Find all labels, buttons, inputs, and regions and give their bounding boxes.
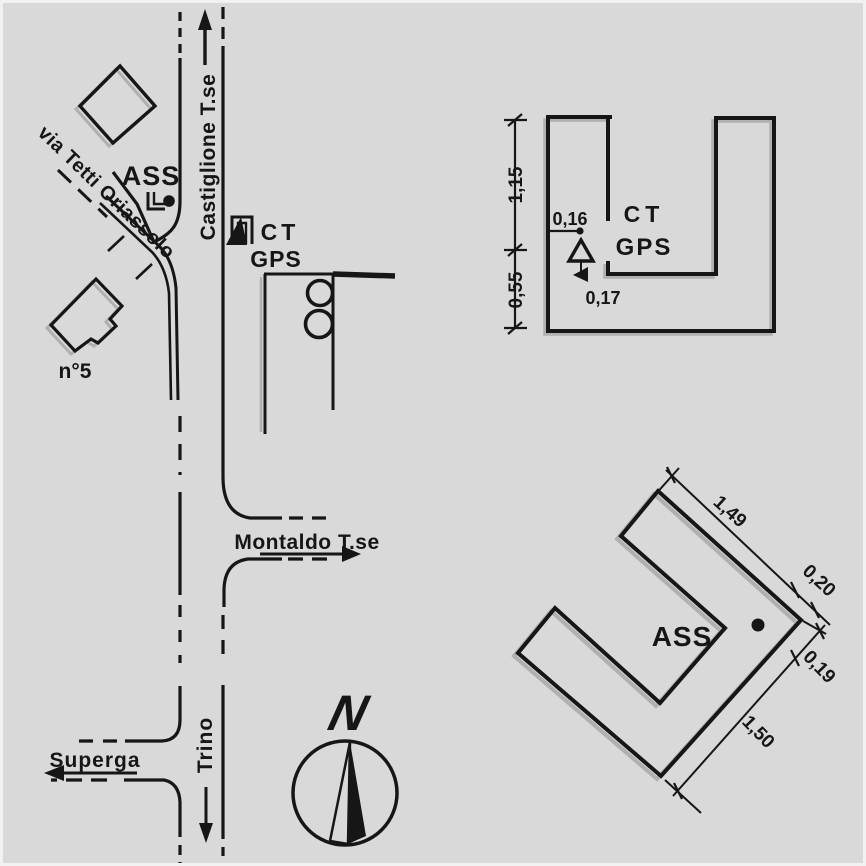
house-number-label: n°5 bbox=[59, 360, 92, 383]
survey-monograph-sketch: ASS CT GPS Castiglione T.se via Tetti Or… bbox=[0, 0, 866, 866]
compass-rose: N bbox=[293, 685, 397, 845]
ass-station-dot-icon bbox=[163, 195, 175, 207]
road-right-edge-upper bbox=[223, 46, 282, 518]
ct-dim-055-label: 0,55 bbox=[506, 271, 527, 308]
castiglione-arrow-icon bbox=[198, 9, 212, 30]
ass-dim-020-label: 0,20 bbox=[798, 561, 839, 602]
road-left-edge-upper bbox=[154, 58, 180, 242]
via-tetti-cross-tick-1 bbox=[108, 236, 124, 251]
building-diamond bbox=[80, 66, 155, 143]
ct-detail-label-gps: GPS bbox=[616, 234, 673, 261]
superga-bottom-edge bbox=[124, 780, 180, 837]
superga-top-edge bbox=[125, 686, 180, 741]
street-label-superga: Superga bbox=[49, 749, 140, 772]
street-label-trino: Trino bbox=[194, 717, 217, 773]
ct-dim-017-label: 0,17 bbox=[585, 288, 620, 308]
montaldo-bottom-edge bbox=[224, 559, 282, 607]
map-label-ct: CT bbox=[261, 219, 300, 245]
ass-dim-149-label: 1,49 bbox=[709, 492, 751, 532]
ct-station-triangle-icon bbox=[569, 240, 593, 261]
ct-station-flag-icon bbox=[226, 217, 247, 245]
gps-window-circle-2 bbox=[306, 311, 333, 338]
building-diamond-shadow bbox=[76, 69, 151, 146]
compass-needle-east-icon bbox=[348, 742, 366, 844]
ass-dim-019-label: 0,19 bbox=[799, 647, 840, 688]
ass-station-dot-icon bbox=[752, 619, 765, 632]
compass-north-label: N bbox=[323, 685, 374, 741]
map-label-gps: GPS bbox=[250, 246, 302, 272]
sketch-canvas: ASS CT GPS Castiglione T.se via Tetti Or… bbox=[3, 3, 863, 863]
ass-detail-label: ASS bbox=[652, 621, 713, 652]
ct-dim-115-label: 1,15 bbox=[506, 166, 527, 203]
buildings bbox=[47, 66, 395, 434]
street-label-montaldo: Montaldo T.se bbox=[234, 531, 379, 554]
via-tetti-cross-tick-2 bbox=[136, 264, 152, 279]
gps-window-circle-1 bbox=[308, 281, 333, 306]
detail-ass: ASS 1,49 0,20 0,19 1,50 bbox=[514, 467, 839, 813]
map-label-ass: ASS bbox=[122, 161, 181, 191]
ass-corner-bracket-outer bbox=[148, 192, 165, 209]
building-gps-roof-line bbox=[333, 274, 395, 276]
detail-ct-gps: 1,15 0,55 0,16 0,17 CT GPS bbox=[504, 114, 774, 334]
ct-dim-016-label: 0,16 bbox=[552, 209, 587, 229]
street-label-castiglione: Castiglione T.se bbox=[197, 74, 220, 241]
trino-arrow-icon bbox=[199, 823, 213, 843]
ct-detail-label-ct: CT bbox=[624, 201, 665, 227]
compass-needle-west-icon bbox=[330, 742, 350, 844]
